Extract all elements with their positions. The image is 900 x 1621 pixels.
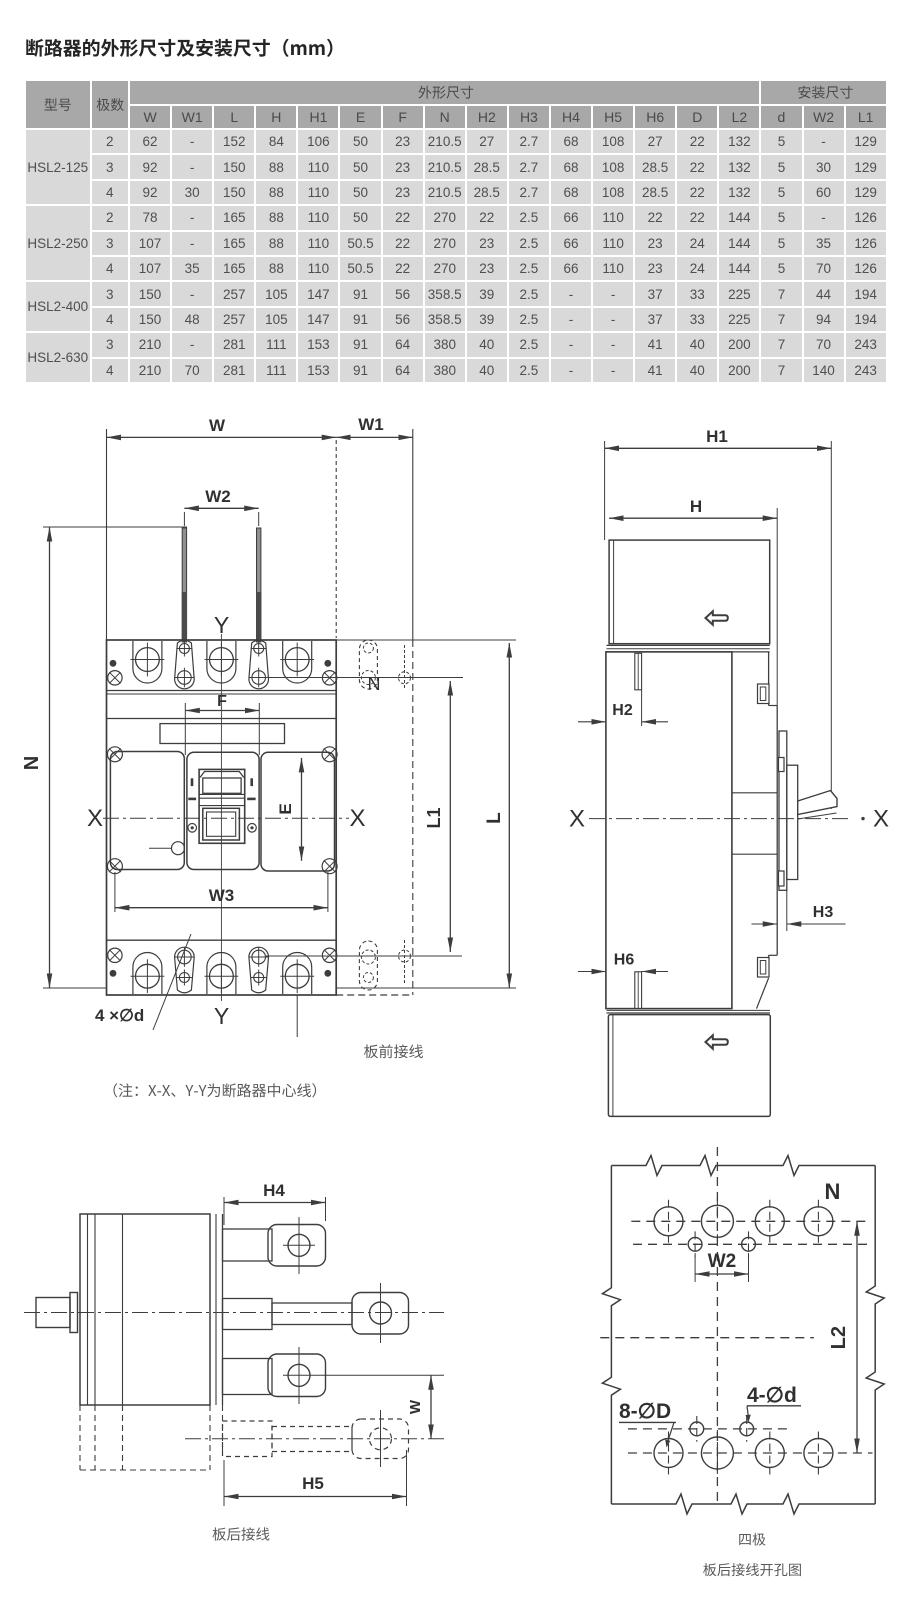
svg-text:H3: H3: [813, 904, 834, 921]
svg-text:4-∅d: 4-∅d: [747, 1384, 797, 1407]
svg-text:W: W: [209, 416, 226, 435]
svg-text:W: W: [407, 1399, 424, 1414]
svg-text:W2: W2: [708, 1251, 737, 1272]
svg-text:W1: W1: [358, 415, 384, 434]
svg-text:H1: H1: [706, 427, 728, 446]
svg-text:Y: Y: [214, 1003, 229, 1029]
svg-text:L1: L1: [424, 807, 444, 828]
svg-text:H5: H5: [302, 1474, 324, 1493]
svg-text:E: E: [276, 803, 295, 814]
svg-text:8-∅D: 8-∅D: [619, 1400, 671, 1423]
svg-text:H2: H2: [612, 702, 633, 719]
svg-text:X: X: [87, 805, 103, 832]
svg-text:W2: W2: [205, 487, 231, 506]
svg-text:F: F: [217, 693, 227, 710]
svg-text:H6: H6: [614, 952, 635, 969]
svg-text:H4: H4: [263, 1181, 285, 1200]
svg-text:4 ×∅d: 4 ×∅d: [95, 1006, 144, 1025]
svg-text:W3: W3: [209, 886, 235, 905]
svg-text:N: N: [825, 1179, 841, 1204]
svg-text:X: X: [569, 806, 585, 833]
svg-text:L: L: [484, 812, 505, 824]
svg-text:N: N: [21, 756, 43, 770]
svg-text:X: X: [349, 805, 365, 832]
svg-text:X: X: [873, 806, 889, 833]
svg-text:L2: L2: [828, 1326, 850, 1349]
svg-text:N: N: [368, 674, 381, 694]
svg-text:H: H: [690, 497, 702, 516]
